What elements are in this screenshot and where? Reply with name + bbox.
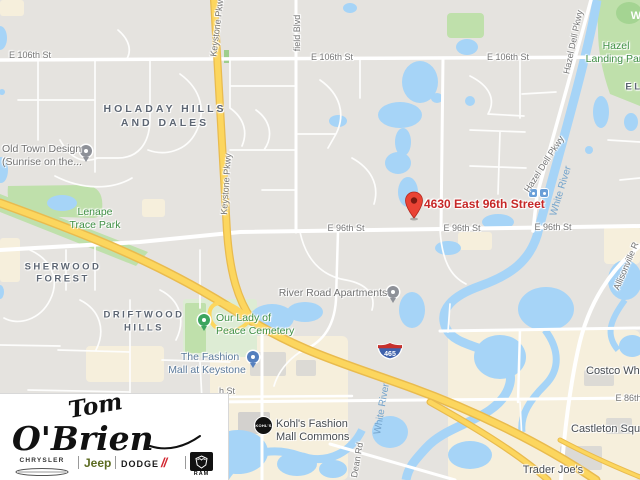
area-label-driftwood-1: DRIFTWOOD xyxy=(103,310,184,321)
street-label-e106th-2: E 106th St xyxy=(311,52,353,62)
park-label-hazel-landing-1: Hazel xyxy=(603,40,630,52)
kohls-logo-icon: KOHL'S xyxy=(254,416,273,435)
shield-number: 465 xyxy=(384,351,396,358)
street-label-e96th-2: E 96th St xyxy=(443,223,480,233)
brand-divider-3 xyxy=(185,456,186,469)
tom-obrien-signature: Tom O'Brien xyxy=(0,394,229,454)
street-label-field-blvd: field Blvd xyxy=(292,15,302,52)
area-label-holaday-2: AND DALES xyxy=(121,117,209,129)
destination-label: 4630 East 96th Street xyxy=(424,197,545,211)
poi-label-fashion-mall-1: The Fashion xyxy=(181,351,239,363)
area-label-driftwood-2: HILLS xyxy=(124,323,164,334)
poi-label-fashion-mall-2: Mall at Keystone xyxy=(168,364,246,376)
chrysler-wordmark: CHRYSLER xyxy=(13,457,71,464)
area-label-holaday-1: HOLADAY HILLS xyxy=(103,103,226,115)
brand-divider-2 xyxy=(115,456,116,469)
area-label-sherwood-2: FOREST xyxy=(36,274,90,285)
river-road-pin-icon xyxy=(387,286,399,298)
area-label-el: EL xyxy=(625,82,640,93)
dodge-wordmark: DODGE xyxy=(121,459,159,469)
map[interactable]: E 106th St E 106th St E 106th St E 96th … xyxy=(0,0,640,480)
park-label-hazel-landing-2: Landing Par xyxy=(586,53,640,65)
brand-divider-1 xyxy=(78,456,79,469)
park-label-our-lady-2: Peace Cemetery xyxy=(216,325,294,337)
street-label-e106th-3: E 106th St xyxy=(487,52,529,62)
park-label-our-lady-1: Our Lady of xyxy=(216,312,271,324)
poi-label-trader-joes: Trader Joe's xyxy=(523,464,583,476)
kohls-badge-text: KOHL'S xyxy=(255,423,271,428)
dealer-logo-panel: Tom O'Brien CHRYSLER Jeep DODGE // RAM xyxy=(0,393,229,480)
street-label-e106th-1: E 106th St xyxy=(9,50,51,60)
poi-label-kohls-1: Kohl's Fashion xyxy=(276,418,348,430)
poi-label-kohls-2: Mall Commons xyxy=(276,431,349,443)
poi-label-old-town-1: Old Town Design xyxy=(2,143,81,155)
street-label-e96th-1: E 96th St xyxy=(327,223,364,233)
jeep-wordmark: Jeep xyxy=(84,456,111,470)
poi-label-old-town-2: (Sunrise on the... xyxy=(2,156,82,168)
street-label-e86th: E 86th St xyxy=(615,393,640,403)
area-label-sherwood-1: SHERWOOD xyxy=(25,262,102,273)
area-label-w: W xyxy=(631,10,640,22)
destination-pin-icon xyxy=(404,191,424,226)
park-label-lenape-2: Trace Park xyxy=(70,219,121,231)
poi-label-river-road-apartments: River Road Apartments xyxy=(279,287,388,299)
boat-ramp-icon-2 xyxy=(540,189,548,197)
interstate-465-shield-icon: 465 xyxy=(377,342,403,365)
poi-label-costco: Costco Wh xyxy=(586,365,640,377)
dodge-slashes-icon: // xyxy=(161,455,166,470)
poi-label-castleton-square: Castleton Squa xyxy=(571,423,640,435)
signature-last-name: O'Brien xyxy=(12,419,154,454)
fashion-mall-pin-icon xyxy=(247,351,259,363)
park-label-lenape-1: Lenape xyxy=(77,206,112,218)
ram-wordmark: RAM xyxy=(190,471,213,477)
chrysler-wings-icon xyxy=(14,467,70,477)
chrysler-logo: CHRYSLER xyxy=(13,457,71,480)
cemetery-pin-icon xyxy=(198,314,210,326)
street-label-e96th-3: E 96th St xyxy=(534,222,571,232)
